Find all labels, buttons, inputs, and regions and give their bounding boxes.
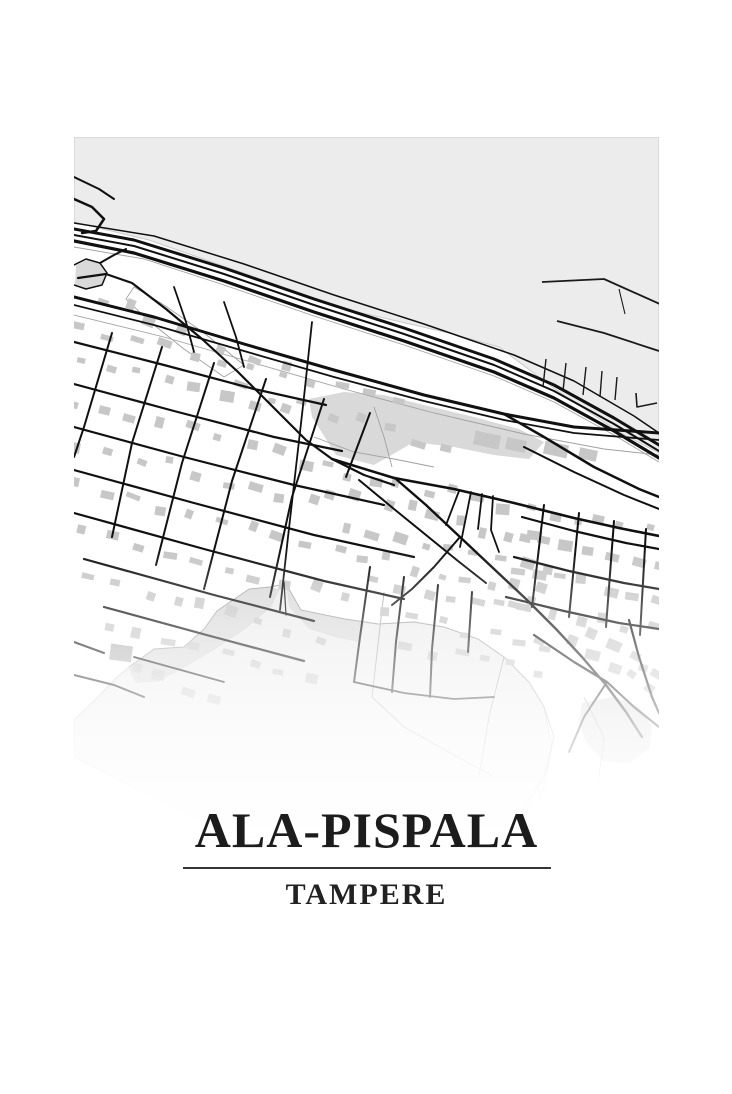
building — [136, 458, 147, 467]
large-building — [109, 644, 133, 663]
building — [408, 499, 418, 511]
building — [189, 557, 203, 566]
building — [272, 443, 287, 456]
building — [478, 527, 487, 539]
building — [554, 573, 566, 580]
building — [102, 447, 113, 456]
building — [503, 532, 514, 543]
building — [163, 551, 178, 560]
road — [569, 513, 579, 617]
building — [490, 629, 501, 636]
building — [495, 503, 510, 515]
building — [100, 490, 115, 501]
building — [405, 612, 418, 619]
road — [74, 342, 326, 405]
building — [223, 482, 235, 490]
building — [164, 375, 174, 385]
building — [439, 616, 448, 624]
building — [246, 575, 261, 585]
building — [393, 584, 406, 595]
building — [126, 491, 141, 501]
building — [608, 662, 623, 675]
building — [458, 577, 471, 584]
building — [151, 669, 165, 681]
building — [650, 595, 659, 606]
building — [273, 493, 284, 503]
building — [512, 639, 526, 647]
road — [74, 642, 104, 653]
building — [248, 520, 259, 532]
building — [184, 509, 194, 520]
building — [619, 625, 629, 634]
building — [322, 460, 334, 467]
building — [219, 390, 235, 403]
building — [424, 589, 436, 601]
building — [539, 645, 551, 652]
building — [581, 546, 593, 556]
building — [576, 616, 588, 628]
building — [626, 669, 637, 680]
road — [74, 333, 112, 457]
building — [248, 481, 264, 493]
road — [100, 249, 126, 263]
building — [132, 367, 141, 374]
building — [189, 471, 201, 482]
road — [359, 480, 486, 583]
building — [74, 477, 80, 487]
building — [646, 523, 655, 531]
building — [340, 592, 350, 602]
building — [174, 596, 184, 607]
building — [487, 581, 496, 591]
building — [342, 523, 351, 534]
poster-subtitle: TAMPERE — [74, 878, 659, 912]
building — [130, 335, 145, 344]
poster-title: ALA-PISPALA — [74, 803, 659, 857]
building — [410, 566, 420, 578]
page-background: { "poster": { "title": "ALA-PISPALA", "s… — [0, 0, 732, 1094]
building — [132, 543, 144, 553]
building — [76, 524, 86, 534]
building — [122, 413, 136, 423]
building — [194, 597, 205, 609]
building — [507, 600, 522, 610]
building — [445, 596, 455, 603]
building — [335, 381, 349, 389]
building — [557, 539, 573, 552]
building — [422, 543, 431, 551]
building — [77, 357, 86, 364]
building — [335, 544, 347, 553]
building — [106, 364, 117, 373]
central-park-band — [309, 392, 544, 465]
building — [190, 352, 201, 363]
building — [654, 561, 659, 571]
building — [459, 632, 468, 639]
building — [625, 592, 639, 601]
building — [392, 531, 409, 545]
road — [156, 363, 214, 565]
poster-caption: ALA-PISPALA TAMPERE — [74, 803, 659, 912]
map-poster: ALA-PISPALA TAMPERE — [74, 137, 659, 957]
building — [604, 586, 620, 598]
building — [246, 363, 255, 371]
building — [535, 581, 548, 594]
building — [380, 607, 389, 616]
road — [112, 347, 162, 537]
building — [585, 627, 599, 641]
building — [160, 638, 175, 647]
building — [154, 506, 166, 516]
building — [225, 567, 234, 574]
building — [511, 568, 526, 576]
building — [212, 433, 221, 442]
building — [424, 490, 436, 499]
building — [438, 574, 446, 581]
building — [495, 555, 507, 562]
building — [247, 439, 259, 450]
building — [154, 416, 165, 429]
building — [548, 609, 558, 621]
road — [74, 513, 404, 599]
building — [165, 456, 173, 464]
building — [298, 541, 312, 549]
building — [308, 493, 320, 505]
building — [98, 405, 111, 416]
building — [356, 555, 368, 563]
building — [187, 381, 201, 392]
building — [74, 399, 79, 410]
building — [280, 403, 292, 414]
building — [650, 668, 659, 681]
building — [110, 578, 121, 586]
building — [104, 623, 114, 632]
title-divider — [183, 867, 551, 869]
building — [363, 529, 379, 541]
road — [606, 521, 614, 627]
building — [74, 321, 85, 331]
building — [146, 591, 157, 602]
building — [130, 627, 142, 640]
building — [81, 572, 94, 580]
building — [533, 670, 543, 678]
building — [584, 648, 601, 662]
building — [605, 638, 623, 653]
building — [493, 599, 504, 606]
